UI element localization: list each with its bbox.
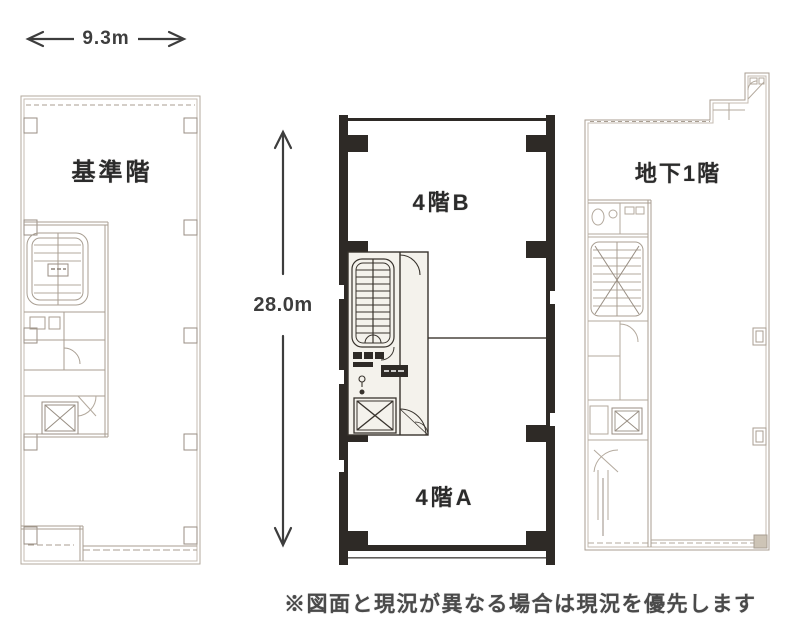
standard-floor-plan: 基準階 bbox=[18, 86, 203, 566]
left-arrow-icon bbox=[24, 30, 74, 48]
up-arrow-icon bbox=[271, 128, 295, 276]
core-walls bbox=[348, 252, 428, 435]
fourth-floor-plan: 4階B 4階A bbox=[337, 115, 557, 565]
basement-label: 地下1階 bbox=[618, 156, 738, 188]
standard-floor-label: 基準階 bbox=[52, 152, 172, 187]
fourth-floor-b-label: 4階B bbox=[392, 185, 492, 217]
down-arrow-icon bbox=[271, 334, 295, 550]
lower-corridor bbox=[594, 450, 754, 540]
disclaimer-note: ※図面と現況が異なる場合は現況を優先します bbox=[284, 588, 757, 618]
kitchenette-label-box bbox=[381, 365, 408, 377]
outer-walls bbox=[585, 73, 769, 550]
right-arrow-icon bbox=[138, 30, 188, 48]
staircase bbox=[27, 233, 88, 305]
elevator bbox=[42, 402, 78, 434]
toilet-room bbox=[588, 203, 648, 237]
right-wall-pillars bbox=[753, 328, 766, 445]
basement-plan: 地下1階 bbox=[582, 66, 772, 551]
width-dimension-label: 9.3m bbox=[80, 28, 131, 50]
height-dimension-label: 28.0m bbox=[253, 276, 312, 334]
corner-block bbox=[754, 535, 767, 548]
fourth-floor-a-label: 4階A bbox=[395, 480, 495, 512]
floorplan-document: 9.3m 28.0m bbox=[0, 0, 800, 636]
entry-notch bbox=[713, 78, 764, 120]
width-dimension: 9.3m bbox=[24, 28, 188, 50]
elevator bbox=[612, 408, 642, 434]
staircase bbox=[591, 242, 643, 316]
basement-drawing bbox=[582, 66, 772, 551]
bottom-room bbox=[21, 526, 197, 561]
height-dimension: 28.0m bbox=[247, 128, 319, 562]
